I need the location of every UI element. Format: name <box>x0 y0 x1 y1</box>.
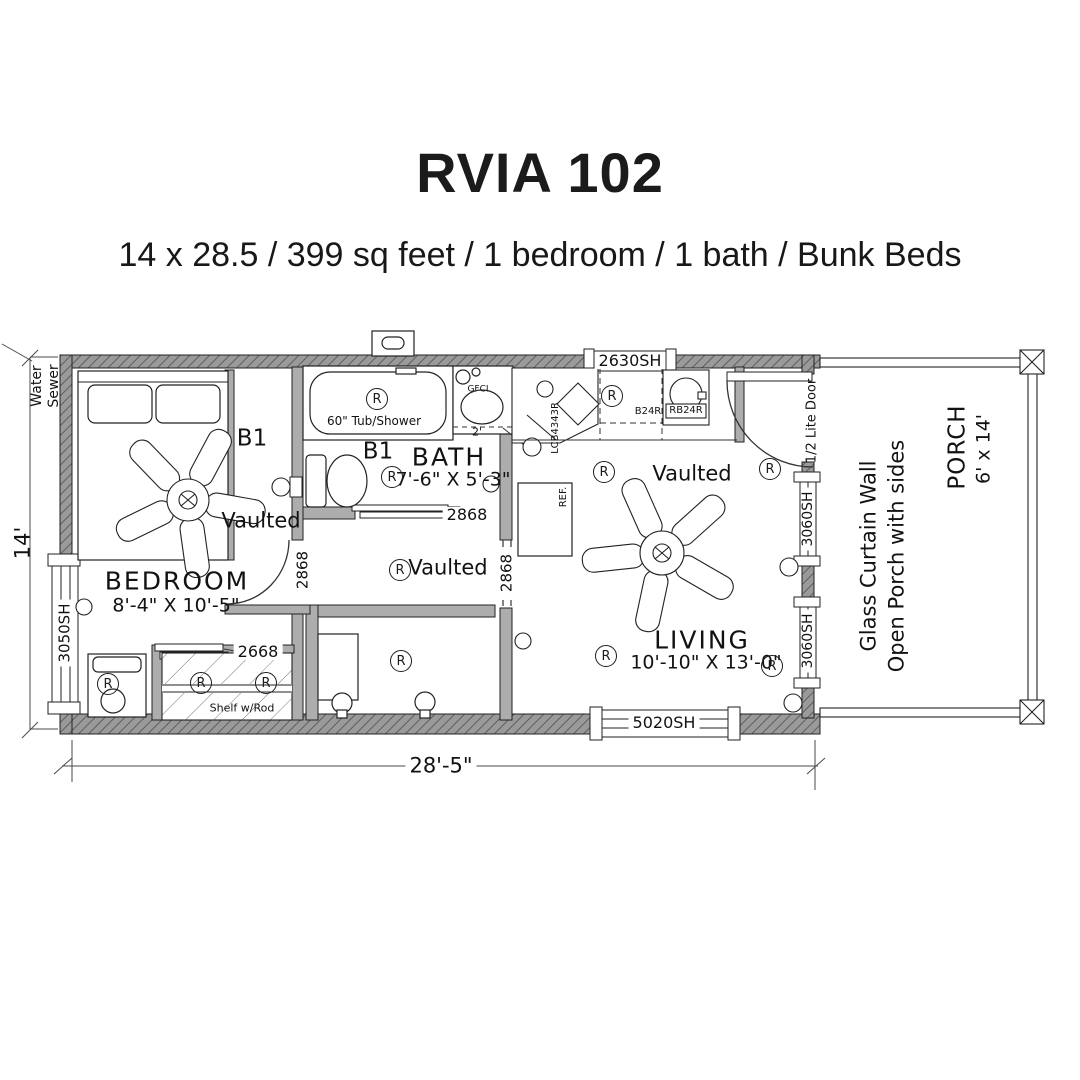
bath-size: 7'-6" X 5'-3" <box>395 471 510 490</box>
sewer-label: Sewer <box>47 364 61 407</box>
receptacle-symbol: R <box>595 645 617 667</box>
tub-label: 60" Tub/Shower <box>327 415 421 427</box>
receptacle-symbol: R <box>381 466 403 488</box>
receptacle-symbol: R <box>97 673 119 695</box>
floor-plan-drawing <box>0 0 1080 1080</box>
b1-note-bedroom: B1 <box>237 428 267 451</box>
water-label: Water <box>30 365 44 406</box>
window-3060sh-lower: 3060SH <box>801 609 815 672</box>
vaulted-note-hall: Vaulted <box>408 558 487 579</box>
b1-note-bath: B1 <box>363 441 393 464</box>
porch-note-1: Glass Curtain Wall <box>859 460 880 651</box>
fridge-ref-label: REF. <box>559 487 569 508</box>
bath-name: BATH <box>412 445 486 470</box>
window-5020sh: 5020SH <box>629 715 700 731</box>
entry-door-label: 1/2 Lite Door <box>806 379 819 463</box>
porch-name: PORCH <box>947 404 970 489</box>
vaulted-note-living: Vaulted <box>652 464 731 485</box>
receptacle-symbol: R <box>255 672 277 694</box>
gfci-label: GFCI <box>467 386 488 395</box>
porch-note-2: Open Porch with sides <box>887 440 908 672</box>
porch-size: 6' x 14' <box>975 414 994 484</box>
receptacle-symbol: R <box>759 458 781 480</box>
cabinet-b24r: B24R <box>635 407 662 417</box>
living-size: 10'-10" X 13'-0" <box>630 654 781 673</box>
range-rb24r: RB24R <box>669 406 702 416</box>
floor-plan-page: RVIA 102 14 x 28.5 / 399 sq feet / 1 bed… <box>0 0 1080 1080</box>
closet-shelf-label: Shelf w/Rod <box>210 703 275 714</box>
opening-living-2868: 2868 <box>500 550 515 596</box>
bedroom-name: BEDROOM <box>105 569 250 594</box>
receptacle-symbol: R <box>366 388 388 410</box>
receptacle-symbol: R <box>593 461 615 483</box>
receptacle-symbol: R <box>190 672 212 694</box>
receptacle-symbol: R <box>601 385 623 407</box>
height-dimension: 14' <box>13 527 34 560</box>
window-2630sh: 2630SH <box>595 353 666 369</box>
floor-plan: Water Sewer 14' 28'-5" 3050SH 2630SH 502… <box>0 0 1080 1080</box>
receptacle-symbol: R <box>761 655 783 677</box>
bedroom-size: 8'-4" X 10'-5" <box>112 597 239 616</box>
vanity-depth-label: 2' <box>472 427 482 438</box>
window-3050sh: 3050SH <box>58 600 73 667</box>
window-3060sh-upper: 3060SH <box>801 487 815 550</box>
door-bedroom-2868: 2868 <box>296 551 311 589</box>
vaulted-note-bedroom: Vaulted <box>221 511 300 532</box>
door-closet-2668: 2668 <box>234 644 283 660</box>
receptacle-symbol: R <box>390 650 412 672</box>
corner-cab-lcb4343r: LCB4343R <box>551 402 561 454</box>
door-bath-2868: 2868 <box>443 507 492 523</box>
width-dimension: 28'-5" <box>405 756 476 777</box>
living-name: LIVING <box>654 628 750 653</box>
receptacle-symbol: R <box>389 559 411 581</box>
